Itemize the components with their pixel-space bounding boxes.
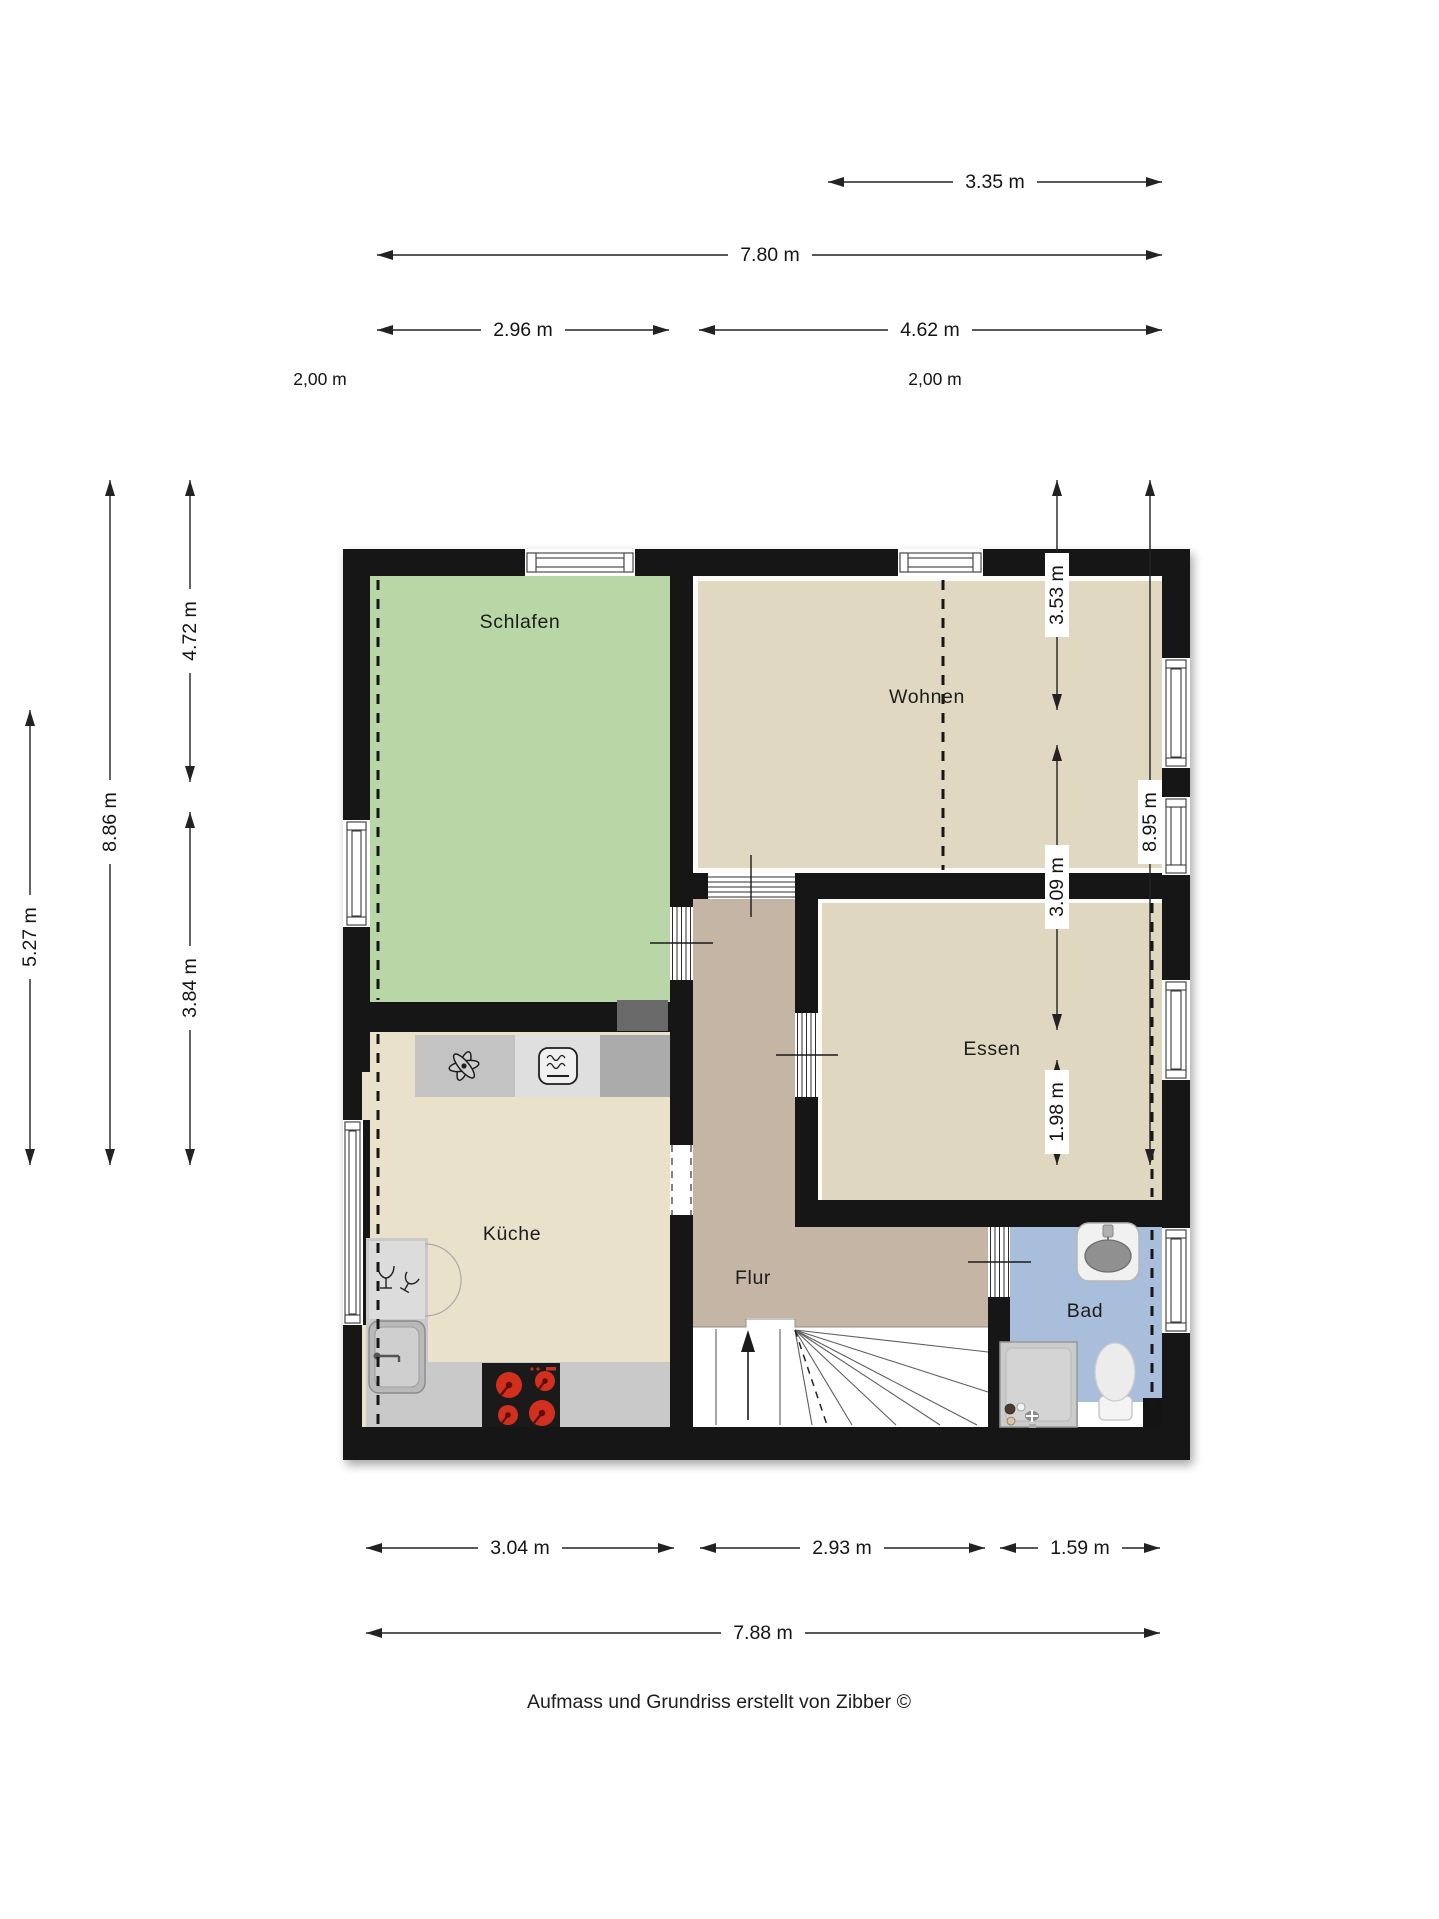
dimension-left-886: 8.86 m [98,480,122,1165]
window-schlafen-top [525,549,635,576]
shower-icon [1000,1342,1077,1428]
dim-label: 7.80 m [740,244,800,266]
room-label-essen: Essen [963,1038,1020,1060]
window-wohnen-right-upper [1162,658,1190,768]
dim-label: 4.62 m [900,319,960,341]
dim-label: 3.09 m [1046,857,1068,917]
cooktop-icon [482,1363,560,1427]
stairs-area [693,1327,988,1427]
dimension-bottom-159: 1.59 m [1000,1536,1160,1560]
window-wohnen-top [898,549,983,576]
dim-label: 8.95 m [1139,792,1161,852]
window-essen-right [1162,980,1190,1080]
dimension-top-780: 7.80 m [377,243,1162,267]
window-wohnen-right-lower [1162,797,1190,875]
window-kueche-left [343,1120,363,1325]
room-label-schlafen: Schlafen [480,611,561,633]
wohnen-bottom-edge [693,868,1162,873]
building: Schlafen Wohnen Küche Essen Flur Bad [343,549,1190,1460]
dimension-bottom-304: 3.04 m [366,1536,674,1560]
stairs [693,1318,988,1427]
room-label-kueche: Küche [483,1223,541,1245]
dimension-left-527: 5.27 m [18,710,42,1165]
room-label-flur: Flur [735,1267,771,1289]
burner [529,1400,555,1426]
dimension-right-198: 1.98 m [1045,1060,1069,1165]
dimension-bottom-788: 7.88 m [366,1621,1160,1645]
dim-label: 8.86 m [99,792,121,852]
room-flur-upper [693,899,795,1327]
dim-label: 3.53 m [1046,565,1068,625]
dim-label: 4.72 m [179,601,201,661]
dim-label: 3.04 m [490,1537,550,1559]
left-wall-step [362,1072,370,1120]
counter-right-section [600,1035,670,1097]
wohnen-top-edge [693,576,1162,581]
burner [498,1405,518,1425]
room-wohnen [693,576,1162,873]
dimension-left-472: 4.72 m [178,480,202,782]
floor-plan-page: 3.35 m 7.80 m 2.96 m 4.62 m 2,00 m 2,00 … [0,0,1439,1919]
dimension-bottom-293: 2.93 m [700,1536,985,1560]
dim-label: 5.27 m [19,907,41,967]
window-schlafen-left [343,820,370,927]
room-label-bad: Bad [1067,1300,1104,1322]
height-marker-right: 2,00 m [908,369,962,389]
dim-label: 3.84 m [179,958,201,1018]
burner [535,1371,555,1391]
washbasin-icon [1077,1223,1139,1281]
height-marker-left: 2,00 m [293,369,347,389]
dimension-left-384: 3.84 m [178,812,202,1165]
room-flur-lower [795,1227,988,1327]
door-kueche [670,1145,693,1215]
dim-label: 2.93 m [812,1537,872,1559]
essen-top-edge [818,899,1162,903]
essen-left-edge [818,899,822,1200]
oven-icon [539,1048,577,1084]
dim-label: 3.35 m [965,171,1025,193]
dimension-top-296: 2.96 m [377,318,669,342]
toilet-icon [1095,1343,1135,1420]
dimension-top-335: 3.35 m [828,170,1162,194]
dim-label: 1.98 m [1046,1082,1068,1142]
dimension-top-462: 4.62 m [699,318,1162,342]
shaft [617,1000,668,1031]
room-label-wohnen: Wohnen [889,686,965,708]
dim-label: 2.96 m [493,319,553,341]
floor-plan-canvas: 3.35 m 7.80 m 2.96 m 4.62 m 2,00 m 2,00 … [0,0,1439,1919]
footer-credit: Aufmass und Grundriss erstellt von Zibbe… [527,1691,912,1713]
wohnen-left-edge [693,576,698,873]
dim-label: 1.59 m [1050,1537,1110,1559]
dim-label: 7.88 m [733,1622,793,1644]
burner [496,1372,522,1398]
room-schlafen [370,576,670,1002]
window-bad-right [1162,1228,1190,1333]
